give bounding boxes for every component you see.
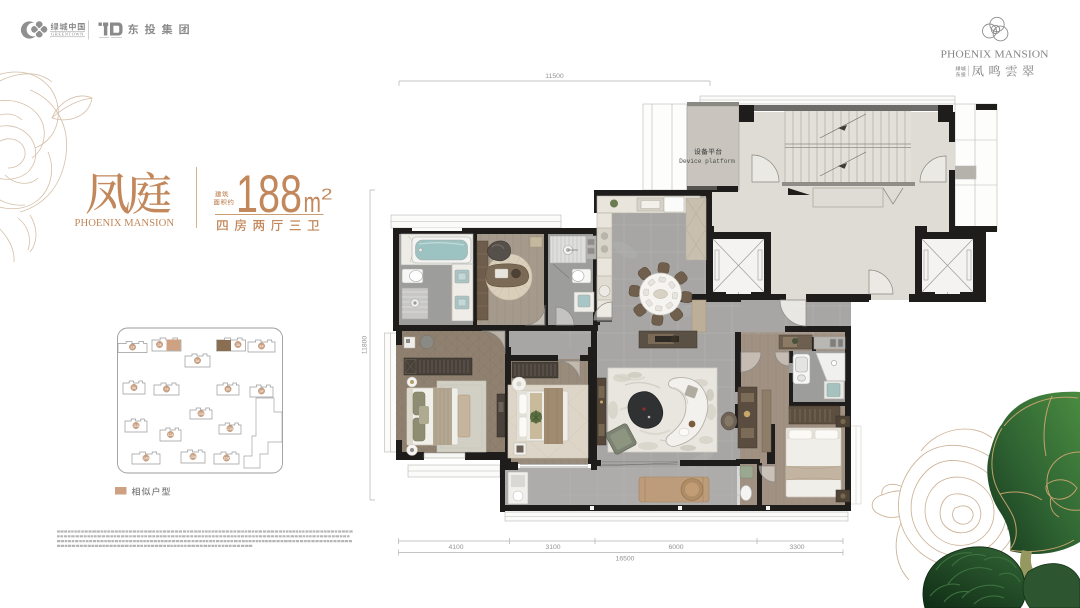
svg-text:3#: 3# <box>236 343 240 347</box>
svg-text:PHOENIX MANSION: PHOENIX MANSION <box>941 49 1049 61</box>
svg-text:3100: 3100 <box>545 544 560 551</box>
svg-text:GREENTOWN: GREENTOWN <box>51 32 84 37</box>
svg-text:11500: 11500 <box>545 73 564 80</box>
svg-text:188: 188 <box>236 165 302 224</box>
svg-text:8#: 8# <box>226 387 230 391</box>
svg-text:4100: 4100 <box>448 544 463 551</box>
svg-text:4#: 4# <box>260 344 264 348</box>
svg-text:3300: 3300 <box>789 544 804 551</box>
svg-text:1#: 1# <box>131 345 135 349</box>
svg-text:Device platform: Device platform <box>679 158 735 165</box>
svg-text:16#: 16# <box>224 456 230 460</box>
svg-text:6000: 6000 <box>668 544 683 551</box>
svg-text:2#: 2# <box>158 343 162 347</box>
svg-text:16500: 16500 <box>616 556 635 563</box>
svg-text:6#: 6# <box>132 386 136 390</box>
svg-text:2: 2 <box>321 187 333 204</box>
svg-text:11800: 11800 <box>362 336 369 355</box>
svg-text:9#: 9# <box>260 389 264 393</box>
svg-text:14#: 14# <box>143 456 149 460</box>
svg-text:15#: 15# <box>190 455 196 459</box>
svg-text:10#: 10# <box>198 412 204 416</box>
svg-text:13#: 13# <box>227 427 233 431</box>
svg-text:PHOENIX MANSION: PHOENIX MANSION <box>75 217 175 229</box>
svg-text:11#: 11# <box>133 424 139 428</box>
svg-text:7#: 7# <box>165 387 169 391</box>
svg-text:12#: 12# <box>168 433 174 437</box>
svg-text:5#: 5# <box>196 359 200 363</box>
